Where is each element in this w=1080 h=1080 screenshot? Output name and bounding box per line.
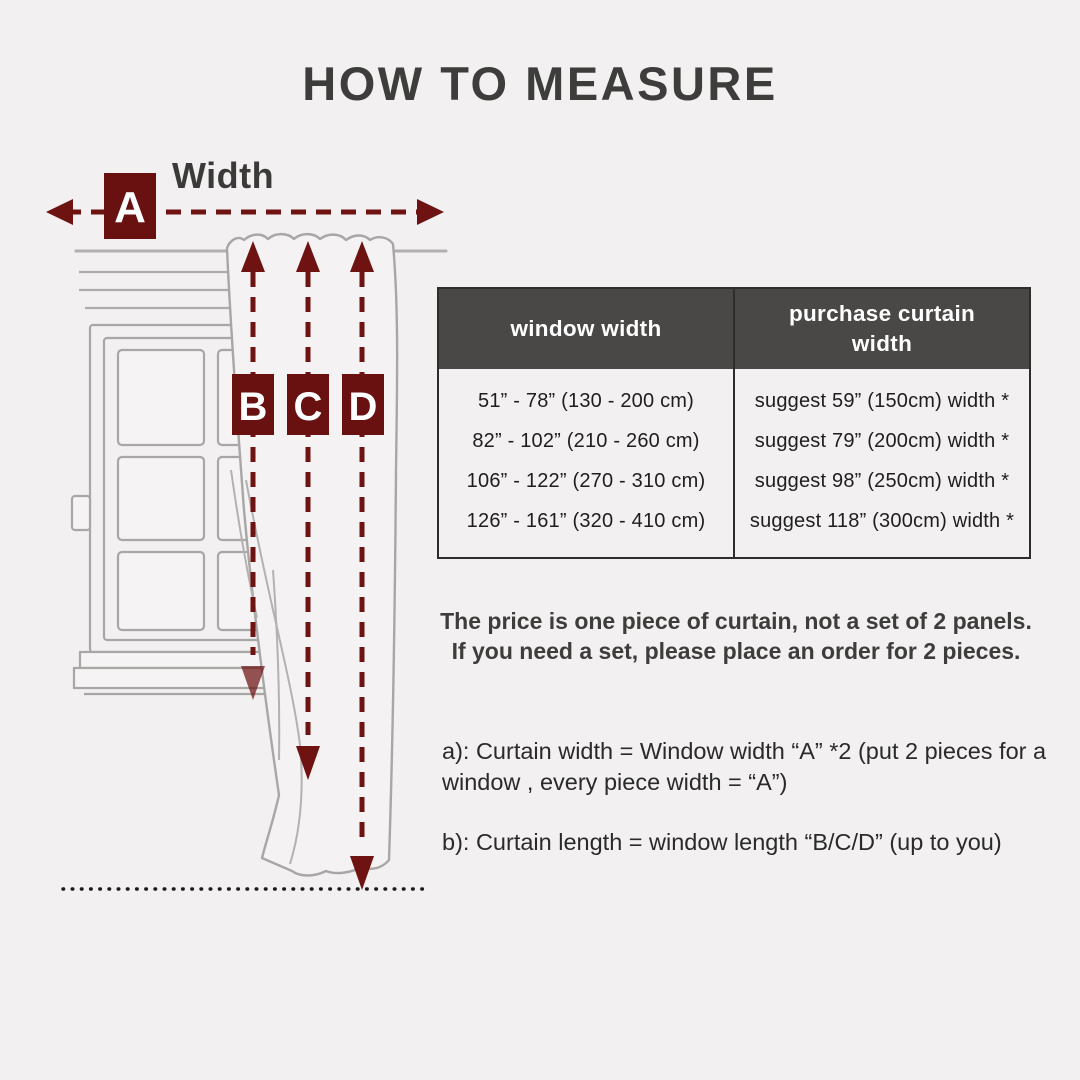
page-title: HOW TO MEASURE: [0, 56, 1080, 111]
marker-a-label: A: [114, 183, 146, 232]
window-sill: [74, 652, 352, 694]
length-arrows: [241, 241, 374, 890]
arrow-left-icon: [46, 199, 73, 225]
marker-boxes: A B C D: [104, 173, 384, 435]
size-table-col-window-width: window width 51” - 78” (130 - 200 cm) 82…: [439, 289, 735, 557]
curtain-sketch: [227, 234, 397, 875]
arrow-up-icon: [350, 241, 374, 272]
size-table: window width 51” - 78” (130 - 200 cm) 82…: [437, 287, 1031, 559]
table-cell: suggest 59” (150cm) width *: [735, 381, 1029, 421]
column-body: suggest 59” (150cm) width * suggest 79” …: [735, 369, 1029, 557]
width-arrow: [46, 199, 444, 225]
width-caption: Width: [172, 155, 274, 197]
marker-box-b: B: [232, 374, 274, 435]
marker-box-a: A: [104, 173, 156, 239]
arrow-down-icon: [296, 746, 320, 780]
table-cell: suggest 118” (300cm) width *: [735, 501, 1029, 541]
table-cell: suggest 98” (250cm) width *: [735, 461, 1029, 501]
column-header: window width: [439, 289, 733, 369]
arrow-b: [241, 241, 265, 700]
arrow-down-icon: [350, 856, 374, 890]
marker-box-d: D: [342, 374, 384, 435]
window-panes: [118, 350, 316, 630]
marker-d-label: D: [349, 385, 378, 429]
price-note: The price is one piece of curtain, not a…: [434, 606, 1038, 666]
column-body: 51” - 78” (130 - 200 cm) 82” - 102” (210…: [439, 369, 733, 557]
marker-box-c: C: [287, 374, 329, 435]
table-cell: 82” - 102” (210 - 260 cm): [439, 421, 733, 461]
infographic-canvas: A B C D HOW TO MEASURE Width window widt…: [0, 0, 1080, 1080]
arrow-up-icon: [296, 241, 320, 272]
cornice-sketch: [79, 272, 300, 308]
note-curtain-length: b): Curtain length = window length “B/C/…: [442, 827, 1054, 858]
marker-c-label: C: [294, 385, 323, 429]
window-latch: [72, 496, 90, 530]
arrow-down-icon: [241, 666, 265, 700]
table-cell: 51” - 78” (130 - 200 cm): [439, 381, 733, 421]
size-table-col-purchase-width: purchase curtain width suggest 59” (150c…: [735, 289, 1029, 557]
table-cell: 126” - 161” (320 - 410 cm): [439, 501, 733, 541]
note-curtain-width: a): Curtain width = Window width “A” *2 …: [442, 736, 1054, 798]
table-cell: 106” - 122” (270 - 310 cm): [439, 461, 733, 501]
arrow-c: [296, 241, 320, 780]
arrow-up-icon: [241, 241, 265, 272]
arrow-right-icon: [417, 199, 444, 225]
arrow-d: [350, 241, 374, 890]
table-cell: suggest 79” (200cm) width *: [735, 421, 1029, 461]
window-sketch: [72, 325, 352, 694]
curtain-folds: [231, 470, 302, 864]
marker-b-label: B: [239, 385, 268, 429]
column-header: purchase curtain width: [735, 289, 1029, 369]
